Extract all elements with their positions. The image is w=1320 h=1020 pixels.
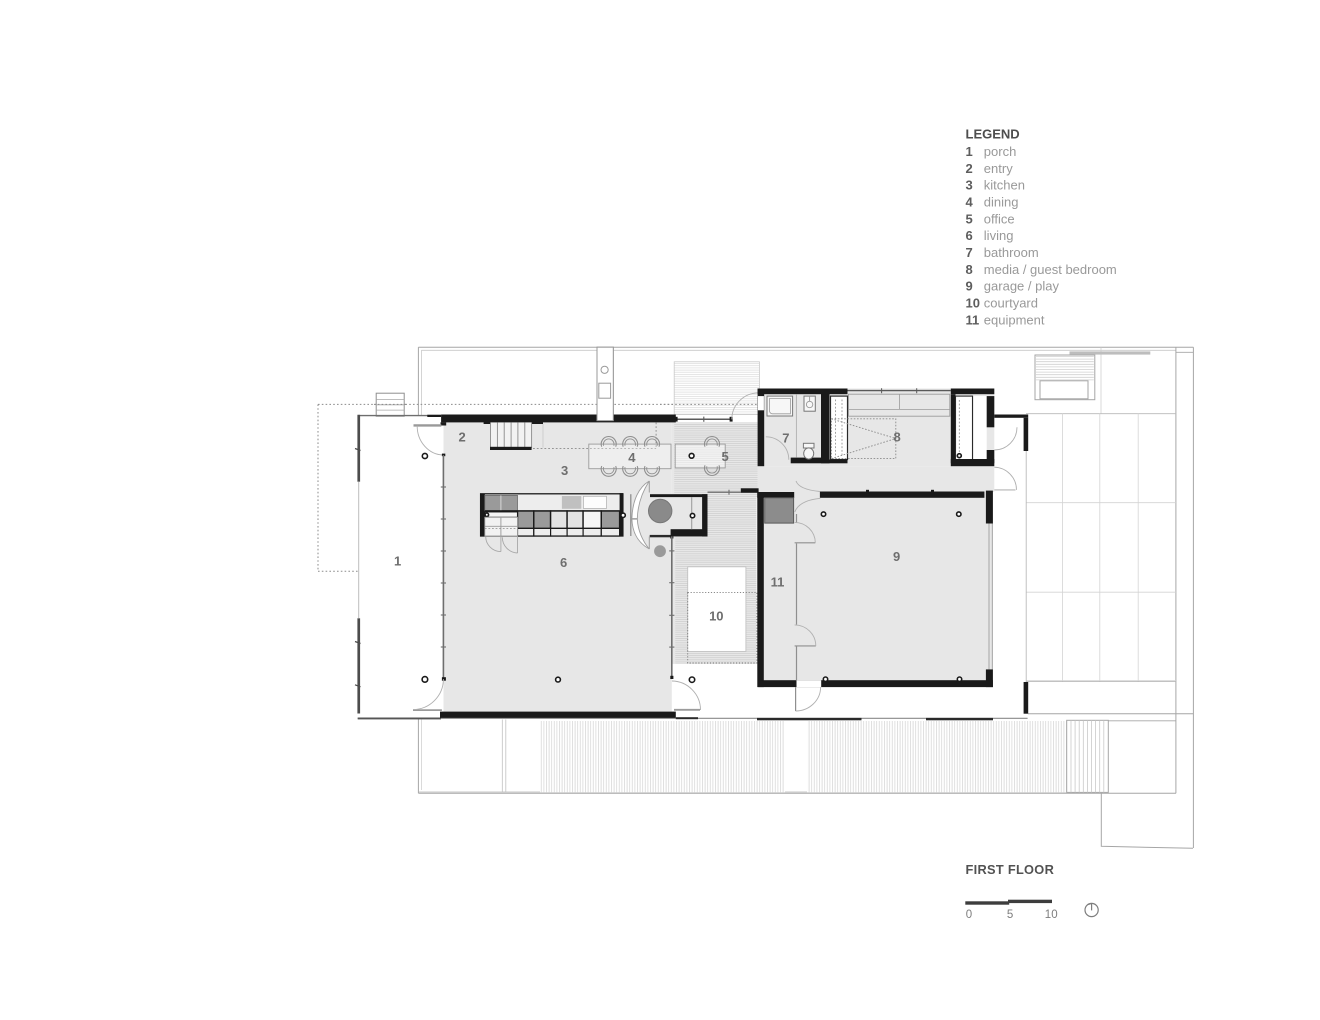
svg-text:2: 2: [459, 429, 466, 444]
svg-text:10: 10: [709, 608, 723, 623]
svg-text:FIRST FLOOR: FIRST FLOOR: [966, 862, 1055, 877]
svg-text:4: 4: [966, 195, 974, 210]
svg-text:courtyard: courtyard: [984, 296, 1038, 311]
svg-text:7: 7: [966, 245, 973, 260]
svg-text:5: 5: [966, 211, 973, 226]
svg-text:6: 6: [560, 555, 567, 570]
svg-text:11: 11: [966, 312, 980, 327]
svg-text:0: 0: [966, 909, 972, 921]
svg-text:4: 4: [628, 450, 636, 465]
svg-text:7: 7: [782, 430, 789, 445]
svg-text:living: living: [984, 228, 1014, 243]
svg-text:9: 9: [966, 279, 973, 294]
svg-text:10: 10: [1045, 909, 1058, 921]
svg-text:6: 6: [966, 228, 973, 243]
svg-text:1: 1: [966, 144, 973, 159]
svg-text:entry: entry: [984, 161, 1013, 176]
svg-text:media / guest bedroom: media / guest bedroom: [984, 262, 1117, 277]
svg-text:8: 8: [966, 262, 973, 277]
svg-text:10: 10: [966, 296, 980, 311]
svg-text:office: office: [984, 211, 1015, 226]
svg-text:3: 3: [561, 463, 568, 478]
svg-text:9: 9: [893, 549, 900, 564]
svg-text:LEGEND: LEGEND: [966, 127, 1020, 142]
svg-text:2: 2: [966, 161, 973, 176]
svg-text:3: 3: [966, 178, 973, 193]
svg-text:garage / play: garage / play: [984, 279, 1060, 294]
svg-text:1: 1: [394, 554, 401, 569]
svg-text:porch: porch: [984, 144, 1017, 159]
svg-text:8: 8: [894, 429, 901, 444]
svg-text:11: 11: [771, 574, 785, 589]
svg-text:5: 5: [722, 449, 729, 464]
svg-text:dining: dining: [984, 195, 1019, 210]
svg-text:kitchen: kitchen: [984, 178, 1025, 193]
svg-text:bathroom: bathroom: [984, 245, 1039, 260]
svg-text:equipment: equipment: [984, 312, 1045, 327]
svg-text:5: 5: [1007, 909, 1013, 921]
